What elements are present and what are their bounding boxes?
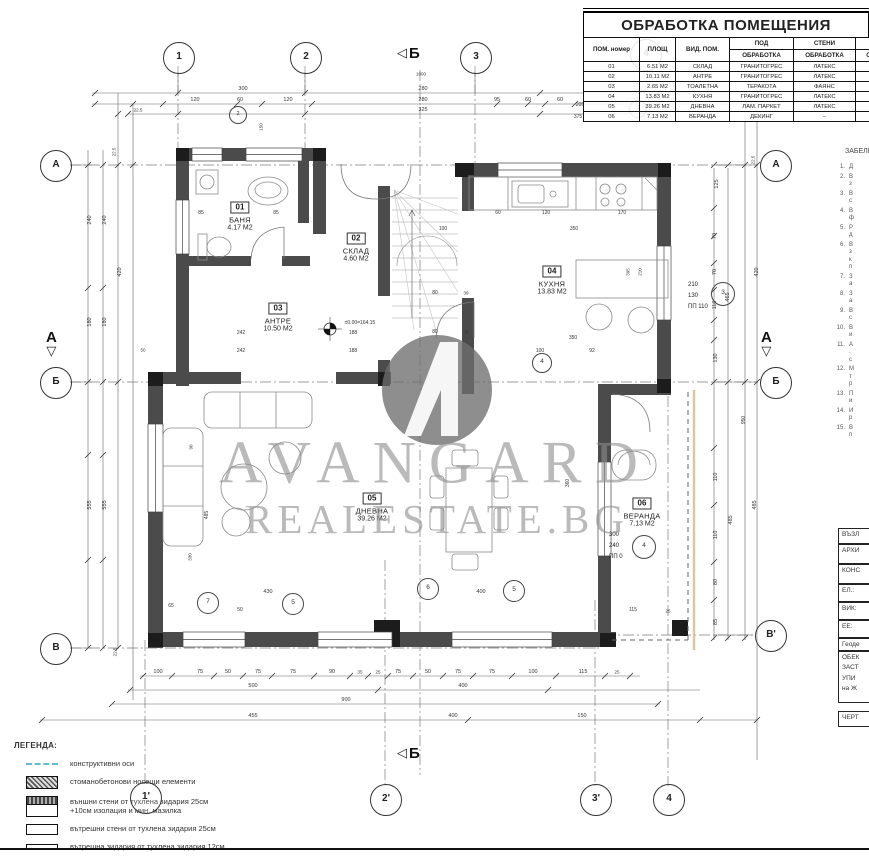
axis-marker-В: В — [40, 633, 72, 665]
dimension-label: 240 — [87, 215, 93, 224]
finishes-cell: ЛАТЕКС — [856, 92, 869, 102]
dimension-label: 100 — [439, 226, 447, 232]
finishes-cell: ЛАТЕКС — [856, 72, 869, 82]
col-header-floor: ПОД — [730, 38, 794, 50]
col-header-area: ПЛОЩ — [640, 38, 676, 62]
opening-mark-2: 2 — [229, 106, 247, 124]
room-label-04: 04КУХНЯ13.83 М2 — [537, 261, 566, 296]
dimension-label: 375 — [574, 114, 582, 120]
dimension-label: 90 — [189, 444, 194, 449]
dimension-label: 485 — [752, 500, 758, 509]
dimension-label: 25 — [614, 670, 619, 675]
finishes-cell: 04 — [584, 92, 640, 102]
dimension-label: 180 — [102, 317, 108, 326]
dimension-label: 900 — [341, 697, 350, 703]
room-label-03: 03АНТРЕ10.50 М2 — [263, 298, 292, 333]
room-name: СКЛАД — [343, 247, 370, 256]
room-label-02: 02СКЛАД4.60 М2 — [343, 228, 370, 263]
dimension-label: 90 — [329, 669, 335, 675]
dimension-label: 455 — [248, 713, 257, 719]
window-spec: 300 240 ПП 0 — [609, 530, 623, 562]
dimension-label: 50 — [225, 669, 231, 675]
dimension-label: 60 — [557, 97, 563, 103]
dimension-label: 75 — [255, 669, 261, 675]
finishes-cell: ЛАТЕКС — [794, 62, 856, 72]
finishes-cell: 03 — [584, 82, 640, 92]
dimension-label: 115 — [629, 607, 637, 613]
col-header-room-number: ПОМ. номер — [584, 38, 640, 62]
dimension-label: 85 — [198, 210, 204, 216]
dimension-label: 360 — [565, 479, 571, 487]
room-label-05: 05ДНЕВНА39.26 М2 — [356, 488, 389, 523]
finishes-cell: 2.65 М2 — [640, 82, 676, 92]
dimension-label: 115 — [579, 669, 588, 675]
col-header-ceiling: ТАВАН — [856, 38, 869, 50]
dimension-label: 39 — [463, 330, 468, 335]
dimension-label: 120 — [283, 97, 292, 103]
finishes-cell: 02 — [584, 72, 640, 82]
dimension-label: 100 — [528, 669, 537, 675]
dimension-label: 22.5 — [112, 148, 117, 157]
axis-marker-3': 3' — [580, 784, 612, 816]
room-finishes-table: ОБРАБОТКА ПОМЕЩЕНИЯ ПОМ. номер ПЛОЩ ВИД.… — [583, 8, 869, 122]
finishes-row: 0539.26 М2ДНЕВНАЛАМ. ПАРКЕТЛАТЕКСЛАТЕКС — [584, 102, 869, 112]
section-triangle-icon: ▽ — [46, 345, 56, 358]
dimension-label: 125 — [714, 179, 720, 188]
room-number: 02 — [347, 233, 366, 245]
dimension-label: 210 — [638, 268, 643, 276]
subheader-floor-finish: ОБРАБОТКА — [730, 50, 794, 62]
section-triangle-icon: ▽ — [761, 345, 771, 358]
dimension-label: 485 — [204, 511, 210, 519]
opening-mark-6: 6 — [417, 578, 439, 600]
dimension-label: 60 — [495, 210, 501, 216]
room-number: 01 — [231, 202, 250, 214]
dimension-label: 50 — [140, 348, 145, 353]
col-header-room-type: ВИД. ПОМ. — [676, 38, 730, 62]
dimension-label: 75 — [290, 669, 296, 675]
axis-marker-А: А — [40, 150, 72, 182]
finishes-row: 032.65 М2ТОАЛЕТНАТЕРАКОТАФАЯНСЛАТЕКС — [584, 82, 869, 92]
dimension-label: 150 — [577, 713, 586, 719]
finishes-cell: ГРАНИТОГРЕС — [730, 62, 794, 72]
dimension-label: 330 — [188, 553, 193, 561]
dimension-label: 950 — [741, 416, 747, 424]
dimension-label: 75 — [489, 669, 495, 675]
opening-mark-3: 3 — [711, 282, 735, 306]
dimension-label: 130 — [713, 353, 719, 362]
dimension-label: 555 — [87, 500, 93, 509]
subheader-wall-finish: ОБРАБОТКА — [794, 50, 856, 62]
finishes-cell: 39.26 М2 — [640, 102, 676, 112]
finishes-cell: ТЕРАКОТА — [730, 82, 794, 92]
section-triangle-icon: ◁ — [397, 747, 407, 760]
dimension-label: 92 — [589, 348, 595, 354]
dimension-label: 80 — [432, 290, 438, 296]
axis-marker-Б: Б — [40, 367, 72, 399]
dimension-label: 75 — [395, 669, 401, 675]
room-label-06: 06ВЕРАНДА7.13 М2 — [623, 493, 660, 528]
dimension-label: 25 — [665, 609, 670, 614]
section-marker-label: Б — [409, 746, 420, 761]
finishes-cell: 05 — [584, 102, 640, 112]
dimension-label: 420 — [117, 267, 123, 276]
room-area: 13.83 М2 — [537, 289, 566, 296]
finishes-row: 0210.11 М2АНТРЕГРАНИТОГРЕСЛАТЕКСЛАТЕКС — [584, 72, 869, 82]
section-triangle-icon: ◁ — [397, 47, 407, 60]
dimension-label: 25 — [375, 670, 380, 675]
section-marker-label: А — [46, 330, 57, 345]
room-name: БАНЯ — [227, 216, 252, 225]
dimension-label: 70 — [712, 233, 718, 239]
dimension-label: 300 — [238, 86, 247, 92]
finishes-cell: ЛАТЕКС — [794, 72, 856, 82]
dimension-label: 150 — [259, 123, 264, 131]
axis-marker-А: А — [760, 150, 792, 182]
finishes-cell: ЛАМ. ПАРКЕТ — [730, 102, 794, 112]
dimension-label: 170 — [618, 210, 626, 216]
room-number: 06 — [633, 498, 652, 510]
finishes-cell: 10.11 М2 — [640, 72, 676, 82]
finishes-cell: СКЛАД — [676, 62, 730, 72]
dimension-label: 35 — [357, 670, 362, 675]
room-number: 03 — [269, 303, 288, 315]
dimension-label: 65 — [168, 603, 174, 609]
axis-marker-2: 2 — [290, 42, 322, 74]
finishes-row: 016.51 М2СКЛАДГРАНИТОГРЕСЛАТЕКСЛАТЕКС — [584, 62, 869, 72]
col-header-walls: СТЕНИ — [794, 38, 856, 50]
section-marker-label: А — [761, 330, 772, 345]
finishes-cell: ГРАНИТОГРЕС — [730, 92, 794, 102]
finishes-cell — [856, 112, 869, 122]
dimension-label: 420 — [754, 267, 760, 276]
dimension-label: 555 — [102, 500, 108, 509]
finishes-cell: ВЕРАНДА — [676, 112, 730, 122]
dimension-label: 95 — [494, 97, 500, 103]
dimension-label: 400 — [458, 683, 467, 689]
axis-marker-4: 4 — [653, 784, 685, 816]
dimension-label: 60 — [525, 97, 531, 103]
room-number: 05 — [363, 493, 382, 505]
floor-plan-sheet: { "icons": { "tri_left": "◁", "tri_down"… — [0, 0, 869, 859]
room-number: 04 — [543, 266, 562, 278]
dimension-label: 395 — [626, 268, 631, 276]
dimension-label: 50 — [237, 607, 243, 613]
finishes-cell: ТОАЛЕТНА — [676, 82, 730, 92]
section-marker-Б: ◁Б — [397, 746, 420, 761]
dimension-label: 180 — [87, 317, 93, 326]
finishes-cell: ДЕКИНГ — [730, 112, 794, 122]
axis-marker-3: 3 — [460, 42, 492, 74]
finishes-cell: 7.13 М2 — [640, 112, 676, 122]
dimension-label: 39 — [463, 291, 468, 296]
dimension-label: 80 — [432, 329, 438, 335]
room-name: АНТРЕ — [263, 317, 292, 326]
dimension-label: 22.5 — [113, 648, 118, 657]
dimension-label: 22.5 — [134, 108, 143, 113]
dimension-label: 120 — [542, 210, 550, 216]
dimension-label: 22.5 — [751, 156, 756, 165]
dimension-label: 1000 — [416, 72, 426, 77]
plan-label-layer: 3002801206012028095606022.53251000420205… — [0, 0, 869, 859]
room-name: КУХНЯ — [537, 280, 566, 289]
room-area: 4.60 М2 — [343, 256, 370, 263]
dimension-label: 485 — [728, 515, 734, 524]
axis-marker-1': 1' — [130, 782, 162, 814]
room-area: 10.50 М2 — [263, 326, 292, 333]
dimension-label: 280 — [418, 86, 427, 92]
axis-marker-2': 2' — [370, 784, 402, 816]
dimension-label: 240 — [102, 215, 108, 224]
dimension-label: 188 — [349, 348, 357, 354]
dimension-label: 188 — [349, 330, 357, 336]
finishes-cell: ЛАТЕКС — [794, 92, 856, 102]
finishes-cell: ЛАТЕКС — [856, 62, 869, 72]
finishes-cell: АНТРЕ — [676, 72, 730, 82]
finishes-cell: КУХНЯ — [676, 92, 730, 102]
section-marker-А: А▽ — [46, 330, 57, 358]
section-marker-label: Б — [409, 46, 420, 61]
finishes-cell: ЛАТЕКС — [856, 82, 869, 92]
dimension-label: 430 — [263, 589, 272, 595]
opening-mark-7: 7 — [197, 592, 219, 614]
room-name: ВЕРАНДА — [623, 512, 660, 521]
subheader-ceiling-finish: ОБРАБОТКА — [856, 50, 869, 62]
dimension-label: 242 — [237, 330, 245, 336]
dimension-label: 100 — [153, 669, 162, 675]
axis-marker-В': В' — [755, 620, 787, 652]
room-label-01: 01БАНЯ4.17 М2 — [227, 197, 252, 232]
finishes-cell: – — [794, 112, 856, 122]
finishes-row: 067.13 М2ВЕРАНДАДЕКИНГ– — [584, 112, 869, 122]
dimension-label: 242 — [237, 348, 245, 354]
room-area: 4.17 М2 — [227, 225, 252, 232]
finishes-cell: ДНЕВНА — [676, 102, 730, 112]
dimension-label: 75 — [197, 669, 203, 675]
finishes-cell: 01 — [584, 62, 640, 72]
window-spec: 210 130 ПП 110 — [688, 280, 708, 312]
dimension-label: 50 — [425, 669, 431, 675]
finishes-cell: 13.83 М2 — [640, 92, 676, 102]
finishes-cell: ЛАТЕКС — [794, 102, 856, 112]
dimension-label: 500 — [248, 683, 257, 689]
dimension-label: 350 — [569, 335, 577, 341]
section-marker-А: А▽ — [761, 330, 772, 358]
room-area: 39.26 М2 — [356, 516, 389, 523]
dimension-label: 325 — [418, 107, 427, 113]
dimension-label: 75 — [455, 669, 461, 675]
finishes-cell: ГРАНИТОГРЕС — [730, 72, 794, 82]
opening-mark-4: 4 — [632, 535, 656, 559]
dimension-label: ±0.00=164.15 — [345, 320, 376, 326]
dimension-label: 350 — [570, 226, 578, 232]
dimension-label: 85 — [273, 210, 279, 216]
dimension-label: 110 — [713, 473, 719, 482]
dimension-label: 60 — [237, 97, 243, 103]
dimension-label: 70 — [712, 269, 718, 275]
dimension-label: 85 — [713, 619, 719, 625]
dimension-label: 120 — [190, 97, 199, 103]
finishes-cell: 06 — [584, 112, 640, 122]
axis-marker-Б: Б — [760, 367, 792, 399]
finishes-cell: ЛАТЕКС — [856, 102, 869, 112]
finishes-row: 0413.83 М2КУХНЯГРАНИТОГРЕСЛАТЕКСЛАТЕКС — [584, 92, 869, 102]
dimension-label: 400 — [448, 713, 457, 719]
dimension-label: 400 — [476, 589, 485, 595]
section-marker-Б: ◁Б — [397, 46, 420, 61]
room-area: 7.13 М2 — [623, 521, 660, 528]
axis-marker-1: 1 — [163, 42, 195, 74]
opening-mark-4: 4 — [532, 353, 552, 373]
opening-mark-5: 5 — [282, 593, 304, 615]
finishes-cell: 6.51 М2 — [640, 62, 676, 72]
finishes-table-title: ОБРАБОТКА ПОМЕЩЕНИЯ — [583, 12, 869, 37]
dimension-label: 110 — [713, 531, 719, 540]
dimension-label: 280 — [418, 97, 427, 103]
opening-mark-5: 5 — [503, 580, 525, 602]
finishes-cell: ФАЯНС — [794, 82, 856, 92]
room-name: ДНЕВНА — [356, 507, 389, 516]
dimension-label: 80 — [713, 579, 719, 585]
